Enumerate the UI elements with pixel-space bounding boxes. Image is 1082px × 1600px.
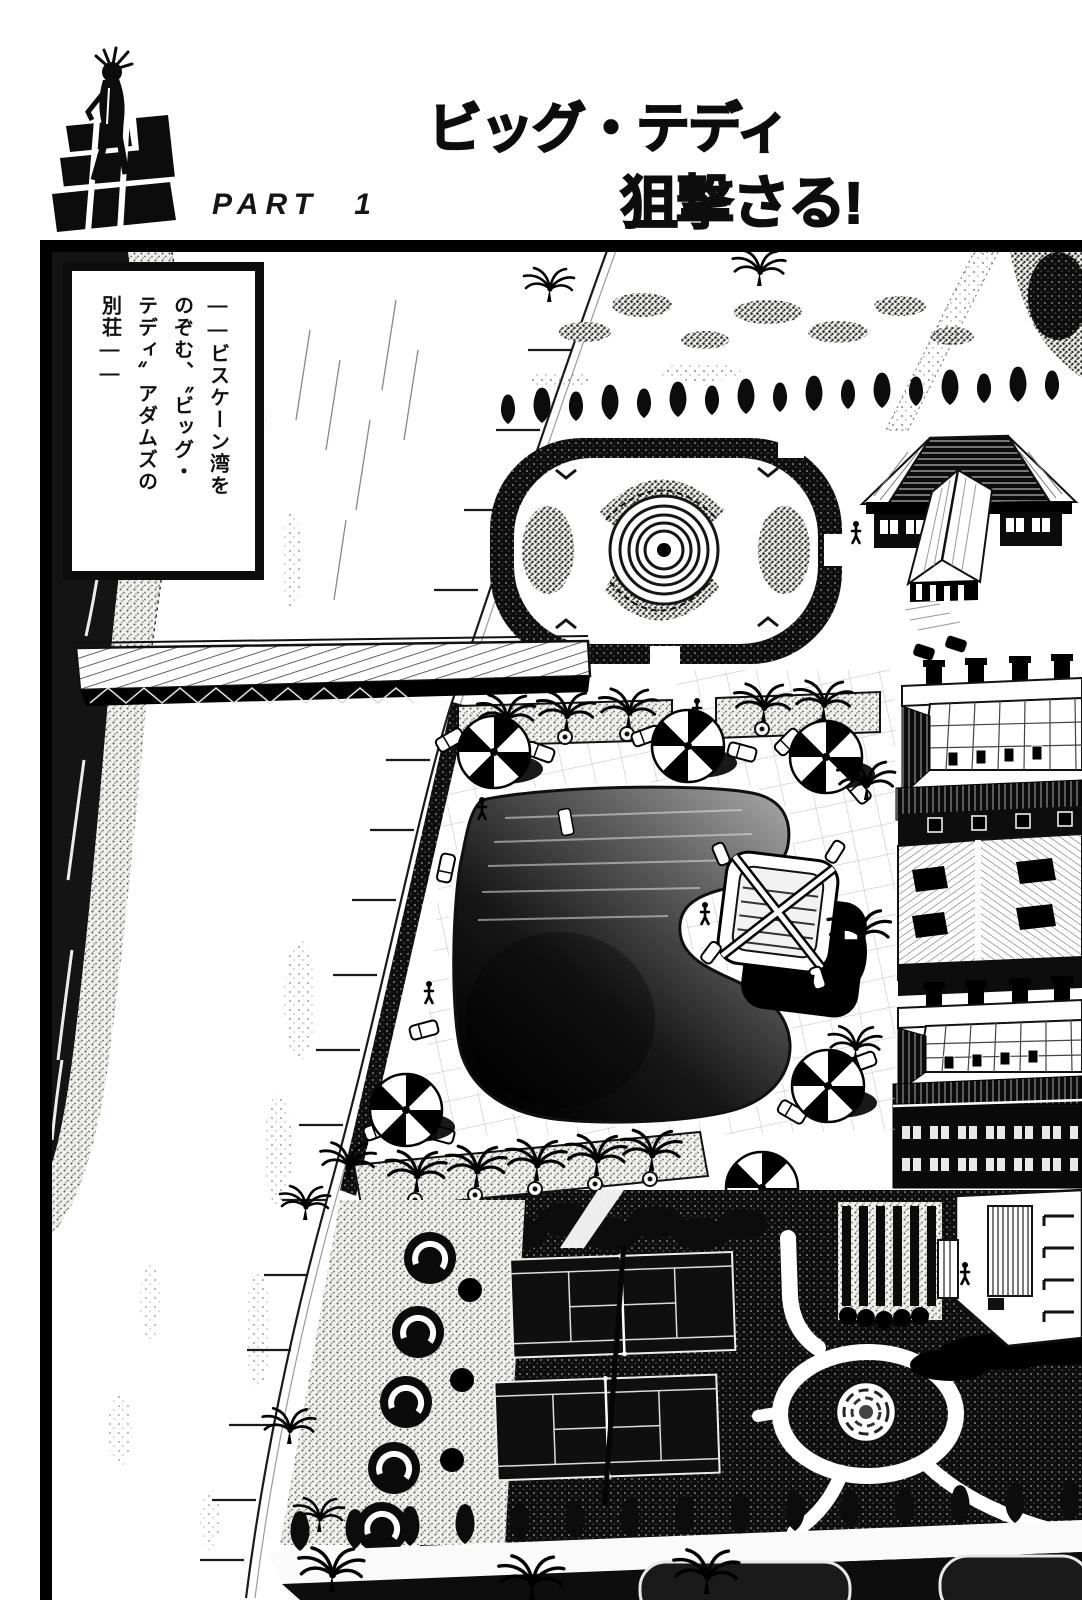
caption-text: ――ビスケーン湾を のぞむ、〝ビッグ・ テディ〟アダムズの 別荘―― [92, 295, 236, 571]
estate-aerial-artwork [0, 0, 1082, 1600]
caption-box: ――ビスケーン湾を のぞむ、〝ビッグ・ テディ〟アダムズの 別荘―― [63, 262, 264, 580]
flower-bed-east [758, 506, 810, 594]
gable-roof-building [898, 806, 1082, 996]
south-grounds [263, 1130, 1082, 1600]
circular-garden [490, 438, 860, 666]
dark-apartment-block [893, 1100, 1082, 1188]
chapter-title-line1: ビッグ・テディ [428, 84, 788, 163]
flower-bed-west [522, 506, 574, 594]
manga-page: PART 1 ビッグ・テディ 狙撃さる! ――ビスケーン湾を のぞむ、〝ビッグ・… [0, 0, 1082, 1600]
chapter-title-line2: 狙撃さる! [620, 156, 861, 240]
garden-fountain [610, 496, 718, 604]
logo-blocks [52, 115, 176, 232]
striped-flower-bed [838, 1202, 942, 1329]
part-label: PART 1 [212, 188, 378, 222]
